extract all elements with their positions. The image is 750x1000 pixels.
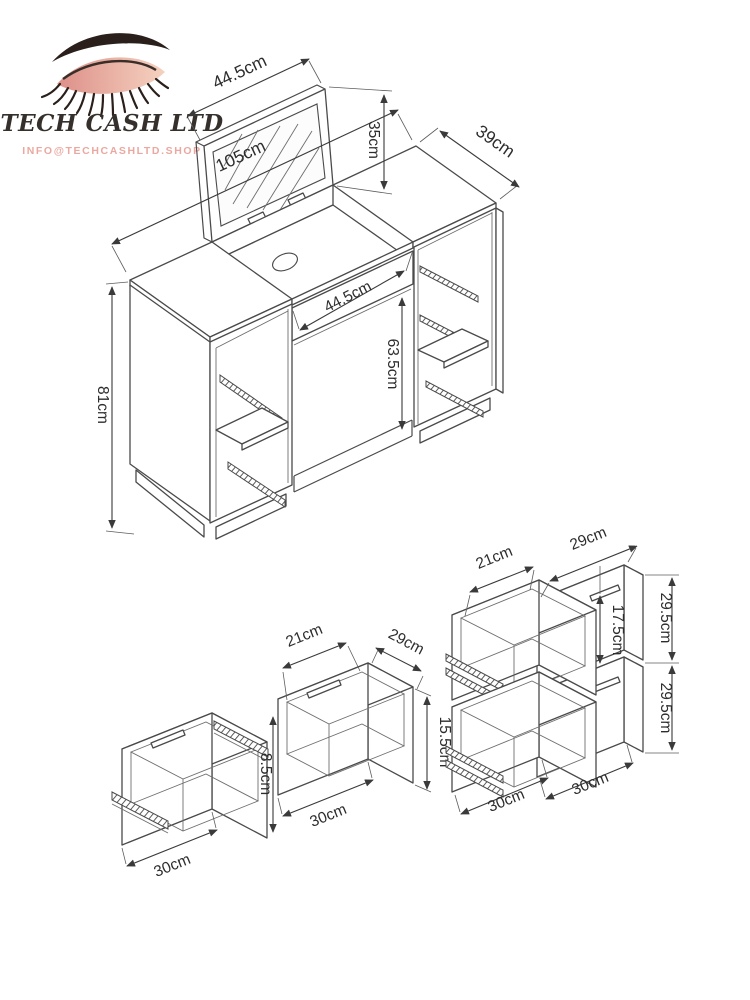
product-dimension-sheet: TECH CASH LTD INFO@TECHCASHLTD.SHOP <box>0 0 750 1000</box>
small-drawer-left <box>122 713 267 845</box>
brand-name: TECH CASH LTD <box>0 110 223 137</box>
dim-label-21cm: 21cm <box>474 543 516 573</box>
dim-label-30cm: 30cm <box>152 851 194 881</box>
eye-lashes-icon <box>42 33 170 116</box>
small-drawers-view: 21cm 29cm 8.5cm 30cm 30cm 15. <box>112 621 453 881</box>
dim-label-30cm: 30cm <box>308 801 350 831</box>
pedestal-side-sliver <box>496 208 503 393</box>
dim-label-29-5cm: 29.5cm <box>657 593 674 644</box>
dim-label-8-5cm: 8.5cm <box>257 753 274 795</box>
drawer-front <box>278 663 368 795</box>
drawer-side <box>624 657 643 752</box>
small-drawer-right <box>278 663 413 795</box>
dim-label-29-5cm: 29.5cm <box>657 683 674 734</box>
eyelid-shape <box>57 57 165 93</box>
dim-label-29cm: 29cm <box>385 626 426 659</box>
dim-large-lower-height: 29.5cm <box>645 666 679 753</box>
knee-space <box>294 420 412 492</box>
eyebrow-shape <box>52 33 170 62</box>
dim-height: 81cm <box>94 282 134 534</box>
dim-label-63-5cm: 63.5cm <box>384 339 401 390</box>
dim-small-outer-height: 15.5cm <box>415 689 453 792</box>
brand-email: INFO@TECHCASHLTD.SHOP <box>22 145 202 157</box>
dim-label-81cm: 81cm <box>94 386 111 424</box>
logo: TECH CASH LTD INFO@TECHCASHLTD.SHOP <box>0 33 223 157</box>
dim-knee-height: 63.5cm <box>384 298 402 429</box>
dim-label-15-5cm: 15.5cm <box>436 717 453 768</box>
dim-label-39cm: 39cm <box>472 121 519 162</box>
dim-label-17-5cm: 17.5cm <box>609 605 626 656</box>
dim-label-35cm: 35cm <box>365 121 382 159</box>
diagram-canvas: TECH CASH LTD INFO@TECHCASHLTD.SHOP <box>0 0 750 1000</box>
dim-label-29cm: 29cm <box>568 524 610 554</box>
dim-label-44-5cm-top: 44.5cm <box>209 50 269 92</box>
dim-label-21cm: 21cm <box>284 621 326 651</box>
pedestal-front-opening <box>414 208 496 427</box>
dim-large-upper-height: 29.5cm <box>645 575 679 663</box>
large-drawers-view: 21cm 29cm 17.5cm 29.5cm 29.5cm <box>446 524 679 816</box>
right-pedestal <box>414 208 503 443</box>
